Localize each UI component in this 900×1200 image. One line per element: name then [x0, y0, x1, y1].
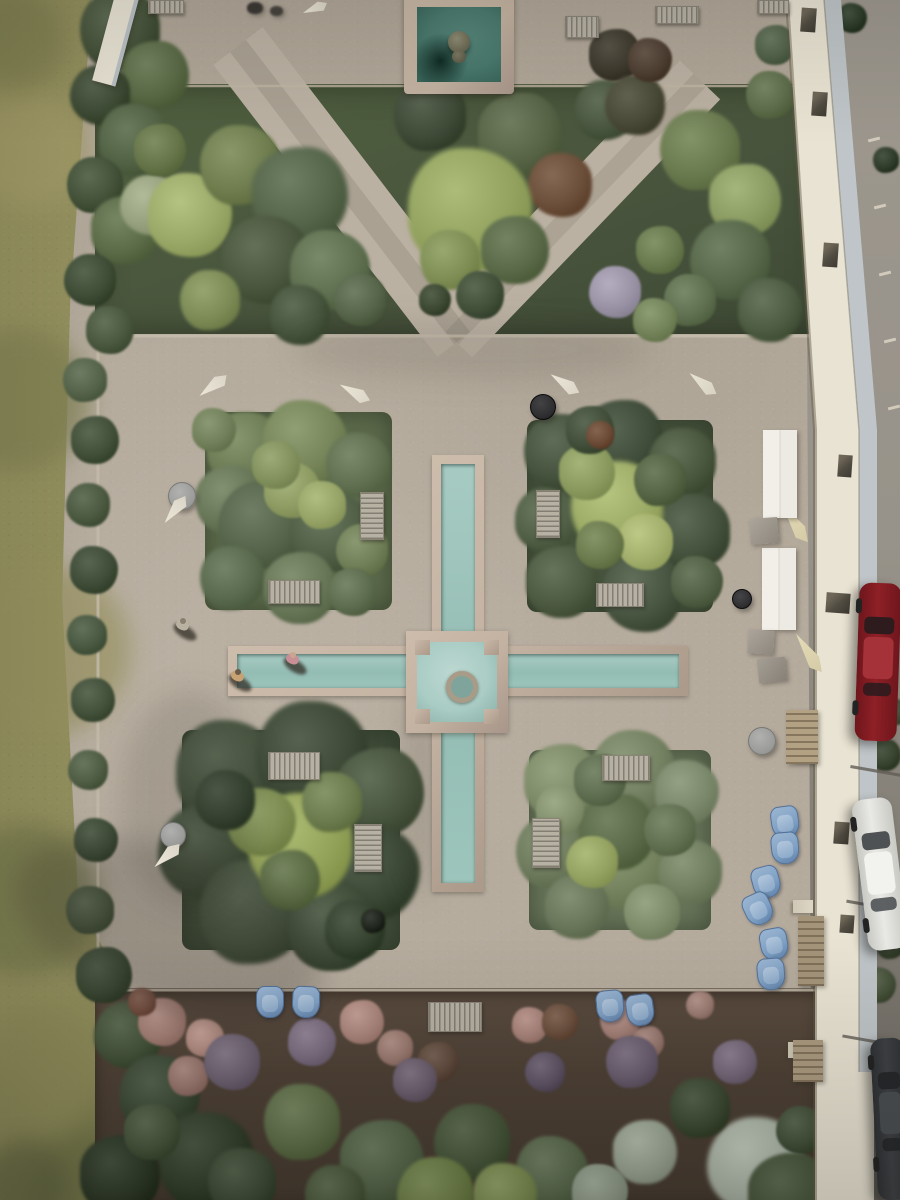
foliage-clump — [528, 153, 592, 217]
wall-window — [822, 243, 839, 268]
round-table — [748, 727, 776, 755]
car-wheel — [856, 598, 863, 613]
foliage-clump — [586, 421, 614, 449]
bench — [655, 6, 699, 24]
foliage-clump — [204, 1034, 260, 1090]
bench — [148, 0, 184, 14]
foliage-clump — [200, 546, 264, 610]
car-wheel — [868, 1055, 875, 1070]
foliage-clump — [776, 1106, 824, 1154]
foliage-clump — [634, 454, 686, 506]
stone-cube-stool — [757, 657, 787, 684]
foliage-clump — [525, 1052, 565, 1092]
bench — [360, 492, 384, 540]
car-roof — [879, 1091, 900, 1134]
closed-umbrella — [195, 370, 231, 402]
car-wheel — [873, 1157, 880, 1172]
foliage-clump — [686, 991, 714, 1019]
foliage-clump — [288, 1018, 336, 1066]
chair-seat — [762, 966, 779, 984]
aerial-garden-photo: Aerial drone view of a formal walled gar… — [0, 0, 900, 1200]
foliage-clump — [606, 1036, 658, 1088]
wall-window — [825, 592, 850, 614]
foliage-clump — [121, 41, 189, 109]
wooden-pallet — [793, 1040, 823, 1082]
foliage-clump — [71, 678, 115, 722]
central-basin — [406, 631, 508, 733]
foliage-clump — [328, 568, 376, 616]
bench — [532, 818, 560, 868]
round-table — [732, 589, 752, 609]
stone-cube-stool — [749, 517, 779, 545]
foliage-clump — [566, 836, 618, 888]
bench — [268, 580, 320, 604]
wooden-pallet — [786, 710, 818, 764]
tree-shadow — [290, 320, 650, 380]
basin-water — [417, 642, 497, 722]
wall-window — [839, 915, 854, 934]
foliage-clump — [302, 772, 362, 832]
closed-umbrella — [337, 378, 374, 408]
foliage-clump — [124, 1104, 180, 1160]
closed-umbrella — [301, 0, 330, 18]
foliage-clump — [837, 3, 867, 33]
bench — [596, 583, 644, 607]
round-table — [160, 822, 186, 848]
fountain-urn — [448, 31, 470, 53]
chair-seat — [748, 899, 770, 921]
foliage-clump — [738, 278, 802, 342]
foliage-clump — [542, 1004, 578, 1040]
white-banquet-table — [763, 430, 797, 518]
basin-corner-stone — [484, 709, 499, 724]
car-windshield — [861, 831, 891, 851]
foliage-clump — [68, 750, 108, 790]
chair-seat — [631, 1002, 649, 1021]
blue-chair — [256, 986, 284, 1018]
car-rear-window — [882, 1137, 900, 1151]
foliage-clump — [671, 556, 723, 608]
foliage-clump — [628, 38, 672, 82]
foliage-clump — [71, 416, 119, 464]
bench — [268, 752, 320, 780]
foliage-clump — [298, 481, 346, 529]
car-roof — [863, 850, 896, 895]
white-banquet-table — [762, 548, 796, 630]
wall-window — [837, 455, 853, 478]
foliage-clump — [605, 75, 665, 135]
foliage-clump — [66, 483, 110, 527]
basin-corner-stone — [415, 640, 430, 655]
dark-figure — [247, 2, 263, 14]
basin-corner-stone — [415, 709, 430, 724]
tree-shadow — [120, 690, 260, 910]
car-rear-window — [863, 682, 891, 696]
chair-seat — [776, 840, 793, 858]
foliage-clump — [576, 521, 624, 569]
car-windshield — [864, 617, 895, 635]
foliage-clump — [168, 1056, 208, 1096]
person-head — [290, 652, 296, 658]
foliage-clump — [208, 1148, 276, 1200]
foliage-clump — [873, 147, 899, 173]
foliage-clump — [456, 271, 504, 319]
foliage-clump — [589, 266, 641, 318]
bench — [602, 755, 650, 781]
dark-figure — [270, 6, 283, 16]
wall-window — [811, 92, 828, 117]
foliage-clump — [264, 1084, 340, 1160]
bench — [354, 824, 382, 872]
foliage-clump — [869, 739, 900, 771]
person-head — [235, 669, 241, 675]
foliage-clump — [361, 909, 385, 933]
foliage-clump — [713, 1040, 757, 1084]
foliage-clump — [340, 1000, 384, 1044]
car-wheel — [852, 700, 859, 715]
foliage-clump — [644, 804, 696, 856]
person-head — [180, 618, 186, 624]
foliage-clump — [617, 514, 673, 570]
foliage-clump — [419, 284, 451, 316]
foliage-clump — [334, 274, 386, 326]
basin-corner-stone — [484, 640, 499, 655]
foliage-clump — [636, 226, 684, 274]
foliage-clump — [64, 254, 116, 306]
foliage-clump — [746, 71, 794, 119]
foliage-clump — [670, 1078, 730, 1138]
foliage-clump — [86, 306, 134, 354]
foliage-clump — [63, 358, 107, 402]
wooden-pallet — [798, 916, 824, 986]
bench — [565, 16, 599, 38]
foliage-clump — [755, 25, 795, 65]
foliage-clump — [70, 546, 118, 594]
blue-chair — [291, 986, 320, 1019]
bench — [428, 1002, 482, 1032]
fountain-pool — [404, 0, 514, 94]
stone-cube-stool — [747, 629, 774, 654]
foliage-clump — [180, 270, 240, 330]
closed-umbrella — [685, 367, 721, 400]
car-red — [854, 582, 900, 741]
bench — [757, 0, 789, 14]
wall-window — [800, 8, 817, 33]
car-roof — [862, 636, 893, 679]
wall-pier — [793, 900, 813, 913]
wall-window — [833, 822, 849, 845]
car-windshield — [878, 1071, 900, 1089]
blue-chair — [756, 957, 787, 991]
basin-fountain-ring — [446, 671, 478, 703]
foliage-clump — [624, 884, 680, 940]
foliage-clump — [192, 408, 236, 452]
foliage-clump — [134, 124, 186, 176]
foliage-clump — [252, 441, 300, 489]
bench — [536, 490, 560, 538]
foliage-clump — [67, 615, 107, 655]
foliage-clump — [393, 1058, 437, 1102]
round-table — [530, 394, 556, 420]
chair-seat — [776, 814, 794, 833]
chair-seat — [298, 995, 315, 1013]
foliage-clump — [633, 298, 677, 342]
chair-seat — [601, 998, 618, 1016]
fountain-water — [417, 7, 501, 82]
chair-seat — [262, 995, 278, 1012]
chair-seat — [765, 936, 784, 956]
foliage-clump — [860, 967, 896, 1003]
blue-chair — [770, 831, 801, 865]
